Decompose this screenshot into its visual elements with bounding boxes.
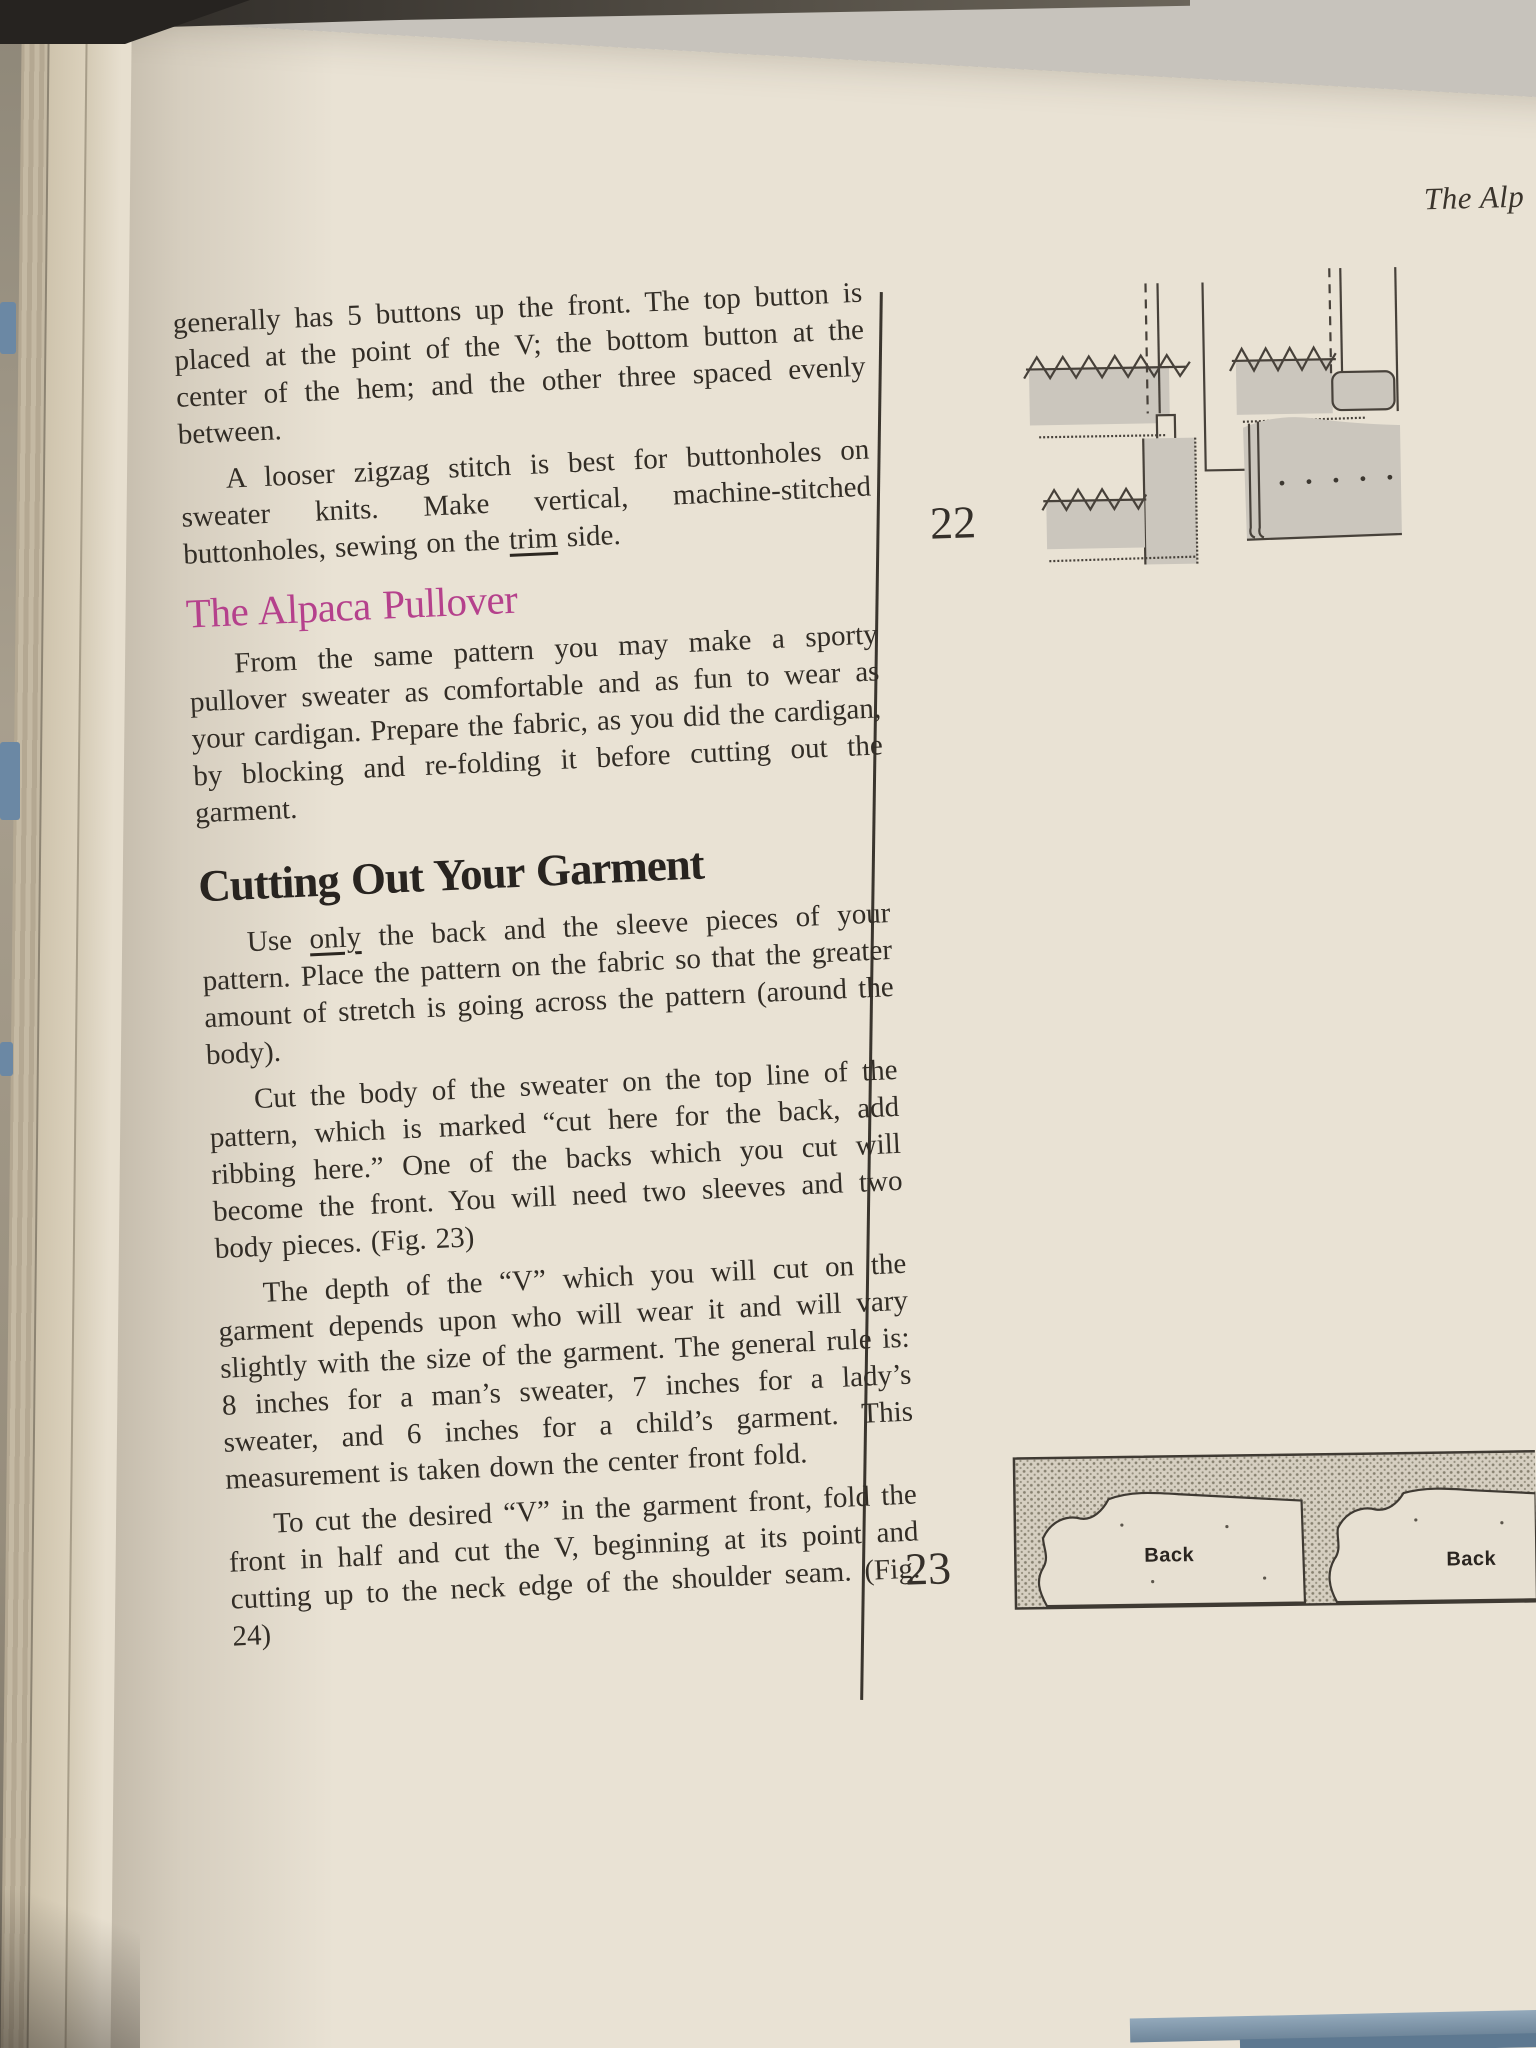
paragraph-buttons: generally has 5 buttons up the front. Th… bbox=[172, 275, 868, 454]
fig23-back-label-1: Back bbox=[1144, 1544, 1194, 1567]
fig22-diagram-bottom-left bbox=[1041, 438, 1197, 567]
paragraph-zigzag-post: side. bbox=[557, 519, 622, 554]
bottom-left-shadow bbox=[0, 1890, 140, 2048]
blue-page-edge bbox=[0, 742, 20, 820]
fig22-diagram-top-right bbox=[1228, 267, 1398, 422]
paragraph-depth-of-v: The depth of the “V” which you will cut … bbox=[216, 1246, 915, 1499]
underlined-word-only: only bbox=[309, 921, 362, 955]
paragraph-use-only-pre: Use bbox=[246, 923, 310, 958]
running-header: The Alp bbox=[1424, 179, 1525, 218]
figure-23-number: 23 bbox=[904, 1541, 952, 1596]
blue-page-edge bbox=[0, 1042, 13, 1076]
book-page-photo: The Alp generally has 5 buttons up the f… bbox=[0, 0, 1536, 2048]
paragraph-zigzag: A looser zigzag stitch is best for butto… bbox=[179, 432, 873, 574]
paragraph-same-pattern: From the same pattern you may make a spo… bbox=[188, 616, 886, 832]
figure-22-number: 22 bbox=[929, 495, 977, 550]
fig23-back-label-2: Back bbox=[1446, 1548, 1496, 1571]
fig22-diagram-bottom-right bbox=[1243, 415, 1402, 540]
figure-22-stitch-diagrams bbox=[1012, 258, 1448, 595]
blue-page-edge bbox=[0, 302, 16, 354]
paragraph-cut-desired-v: To cut the desired “V” in the garment fr… bbox=[227, 1476, 923, 1655]
paragraph-use-only: Use only the back and the sleeve pieces … bbox=[200, 895, 896, 1074]
figure-23-cutting-layout: Back Back bbox=[1001, 1434, 1536, 1631]
underlined-word-trim: trim bbox=[508, 522, 558, 556]
paragraph-cut-body: Cut the body of the sweater on the top l… bbox=[207, 1052, 905, 1268]
text-column: generally has 5 buttons up the front. Th… bbox=[172, 275, 923, 1665]
